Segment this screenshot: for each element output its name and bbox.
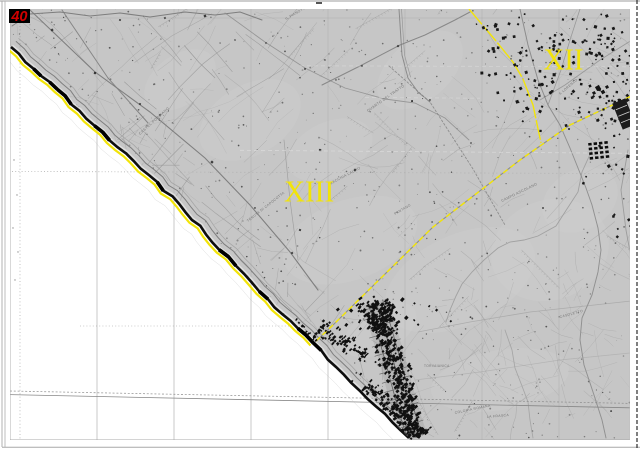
- svg-text:XIII: XIII: [284, 174, 334, 209]
- svg-text:TORVAIANICA: TORVAIANICA: [424, 364, 450, 368]
- svg-text:40: 40: [10, 9, 27, 25]
- svg-text:XII: XII: [544, 43, 584, 77]
